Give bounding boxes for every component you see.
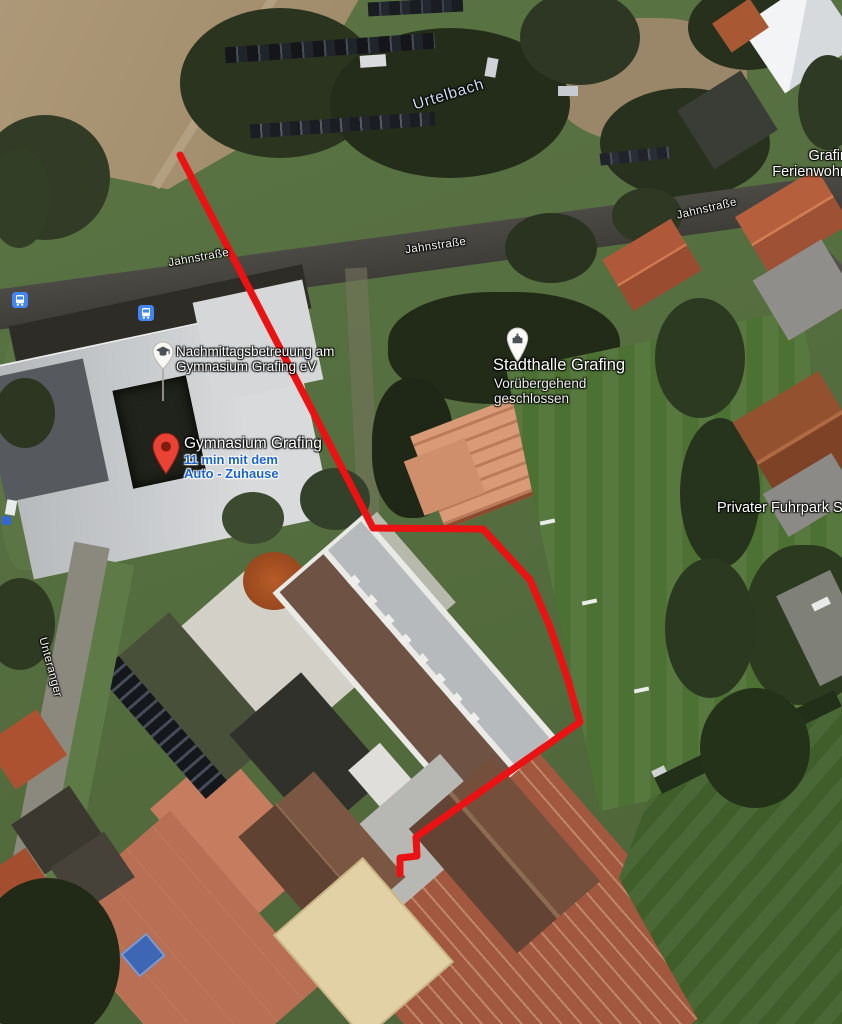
parked-cars: [360, 54, 387, 68]
road-sign: [2, 516, 11, 525]
place-label-line: Gymnasium Grafing eV: [176, 359, 334, 374]
terrain-shape: [505, 213, 597, 283]
area-label-line: Grafin: [772, 148, 842, 164]
travel-time-line: Auto - Zuhause: [184, 467, 279, 481]
school-pin-icon[interactable]: [151, 341, 175, 408]
destination-pin-icon[interactable]: [152, 432, 180, 480]
area-label-ferienwohnung: Grafin Ferienwohn: [772, 148, 842, 180]
terrain-shape: [665, 558, 755, 698]
place-label-betreuung[interactable]: Nachmittagsbetreuung am Gymnasium Grafin…: [176, 344, 334, 374]
place-status-label: Vorübergehend geschlossen: [494, 376, 586, 406]
travel-time-line: 11 min mit dem: [184, 453, 279, 467]
parked-cars: [368, 0, 464, 16]
bus-stop-icon[interactable]: [12, 292, 28, 313]
terrain-shape: [700, 688, 810, 808]
place-label-line: Nachmittagsbetreuung am: [176, 344, 334, 359]
place-status-line: geschlossen: [494, 391, 586, 406]
parked-cars: [558, 86, 578, 96]
place-label-gymnasium[interactable]: Gymnasium Grafing: [184, 435, 322, 453]
area-label-fuhrpark: Privater Fuhrpark Se: [717, 500, 842, 516]
travel-time-label[interactable]: 11 min mit dem Auto - Zuhause: [184, 453, 279, 481]
screenshot-stage: Urtelbach Jahnstraße Jahnstraße Jahnstra…: [0, 0, 842, 1024]
place-label-stadthalle[interactable]: Stadthalle Grafing: [493, 356, 625, 375]
place-status-line: Vorübergehend: [494, 376, 586, 391]
bus-stop-icon[interactable]: [138, 305, 154, 326]
terrain-shape: [222, 492, 284, 544]
satellite-map-viewport[interactable]: Urtelbach Jahnstraße Jahnstraße Jahnstra…: [0, 0, 842, 1024]
roof-windows: [98, 656, 227, 799]
area-label-line: Ferienwohn: [772, 164, 842, 180]
terrain-shape: [655, 298, 745, 418]
